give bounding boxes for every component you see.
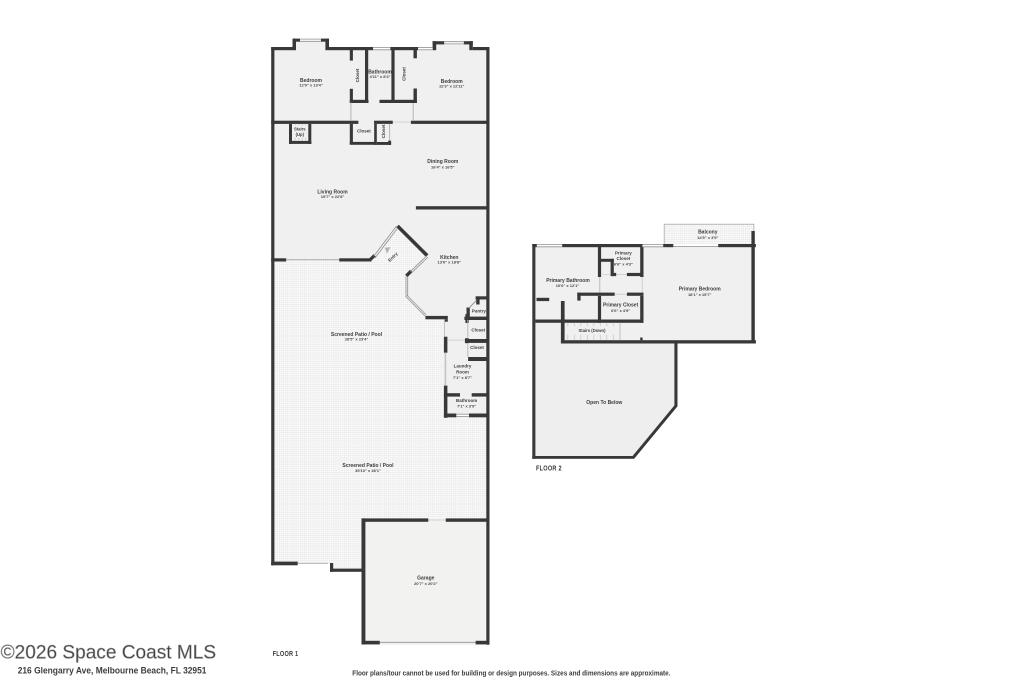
svg-text:Closet: Closet bbox=[357, 128, 371, 133]
svg-text:18'1" x 15'7": 18'1" x 15'7" bbox=[688, 292, 712, 297]
svg-text:16'4" x 16'5": 16'4" x 16'5" bbox=[431, 165, 455, 170]
svg-text:Stairs (Down): Stairs (Down) bbox=[579, 328, 607, 333]
svg-text:4'11" x 8'4": 4'11" x 8'4" bbox=[369, 74, 390, 79]
svg-text:35'10" x 28'1": 35'10" x 28'1" bbox=[355, 468, 381, 473]
svg-text:©2026 Space Coast MLS: ©2026 Space Coast MLS bbox=[1, 642, 217, 664]
svg-text:28'5" x 23'4": 28'5" x 23'4" bbox=[345, 337, 369, 342]
svg-text:14'5" x 3'5": 14'5" x 3'5" bbox=[697, 235, 718, 240]
svg-text:7'1" x 3'9": 7'1" x 3'9" bbox=[457, 404, 476, 409]
svg-text:Laundry: Laundry bbox=[454, 364, 472, 369]
svg-text:Closet: Closet bbox=[470, 345, 484, 350]
svg-text:7'1" x 8'7": 7'1" x 8'7" bbox=[453, 375, 472, 380]
svg-text:Closet: Closet bbox=[617, 256, 631, 261]
svg-text:Room: Room bbox=[456, 369, 469, 374]
svg-text:10'6" x 12'1": 10'6" x 12'1" bbox=[556, 283, 580, 288]
svg-text:6'6" x 4'3": 6'6" x 4'3" bbox=[614, 262, 633, 267]
svg-text:13'6" x 18'8": 13'6" x 18'8" bbox=[438, 260, 462, 265]
svg-text:Open To Below: Open To Below bbox=[586, 400, 622, 406]
svg-text:FLOOR 2: FLOOR 2 bbox=[536, 466, 562, 473]
svg-text:FLOOR 1: FLOOR 1 bbox=[273, 651, 299, 658]
svg-text:Floor plans/tour cannot be use: Floor plans/tour cannot be used for buil… bbox=[352, 670, 670, 677]
svg-text:12'9" x 13'4": 12'9" x 13'4" bbox=[299, 83, 323, 88]
svg-text:Pantry: Pantry bbox=[472, 308, 487, 313]
svg-text:(Up): (Up) bbox=[296, 132, 305, 137]
svg-text:Closet: Closet bbox=[471, 328, 485, 333]
svg-text:Closet: Closet bbox=[381, 124, 386, 138]
svg-text:Bathroom: Bathroom bbox=[456, 398, 477, 403]
svg-text:12'3" x 12'11": 12'3" x 12'11" bbox=[439, 84, 465, 89]
svg-text:Closet: Closet bbox=[402, 67, 407, 81]
svg-text:Primary: Primary bbox=[615, 251, 632, 256]
svg-text:19'7" x 22'8": 19'7" x 22'8" bbox=[321, 194, 345, 199]
svg-text:Stairs: Stairs bbox=[294, 127, 306, 132]
svg-text:216 Glengarry Ave, Melbourne B: 216 Glengarry Ave, Melbourne Beach, FL 3… bbox=[18, 666, 207, 676]
svg-text:Closet: Closet bbox=[355, 68, 360, 82]
svg-text:6'6" x 4'9": 6'6" x 4'9" bbox=[611, 308, 630, 313]
svg-text:20'7" x 20'2": 20'7" x 20'2" bbox=[414, 581, 438, 586]
